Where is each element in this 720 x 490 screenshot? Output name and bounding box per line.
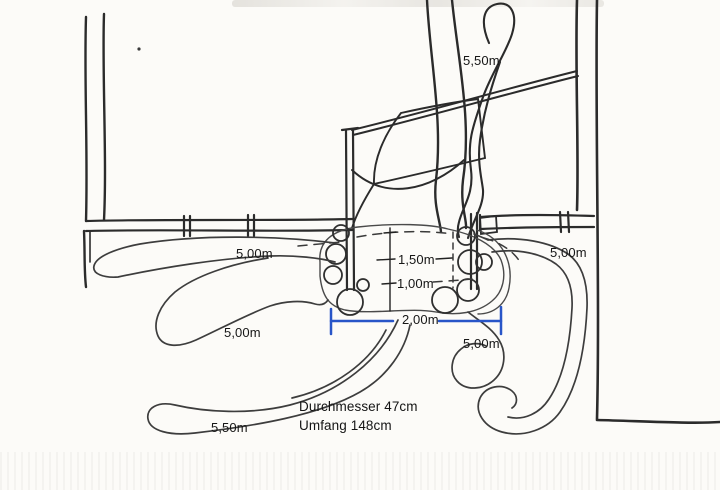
right-wall <box>576 0 720 423</box>
label-root-right-upper: 5,00m <box>550 245 587 260</box>
label-offset-upper: 1,50m <box>398 252 435 267</box>
note-diameter: Durchmesser 47cm <box>299 398 418 416</box>
note-circumference: Umfang 148cm <box>299 417 392 435</box>
root-contours-right <box>452 234 587 434</box>
label-offset-lower: 1,00m <box>397 276 434 291</box>
label-root-left-lower: 5,50m <box>211 420 248 435</box>
scan-texture-bottom <box>0 452 720 490</box>
root-ball-stones <box>324 225 492 315</box>
tree-trunk <box>427 0 466 232</box>
label-root-left-upper: 5,00m <box>236 246 273 261</box>
fence-left <box>86 215 352 236</box>
left-wall <box>84 14 105 287</box>
dimension-lines <box>377 228 452 311</box>
label-width-between: 2,00m <box>402 312 439 327</box>
scanned-sketch-page: 5,50m 5,00m 5,00m 5,50m 5,00m 5,00m 1,50… <box>0 0 720 490</box>
label-branch-length: 5,50m <box>463 53 500 68</box>
label-root-right-lower: 5,00m <box>463 336 500 351</box>
label-root-left-middle: 5,00m <box>224 325 261 340</box>
pencil-dot <box>137 47 140 50</box>
